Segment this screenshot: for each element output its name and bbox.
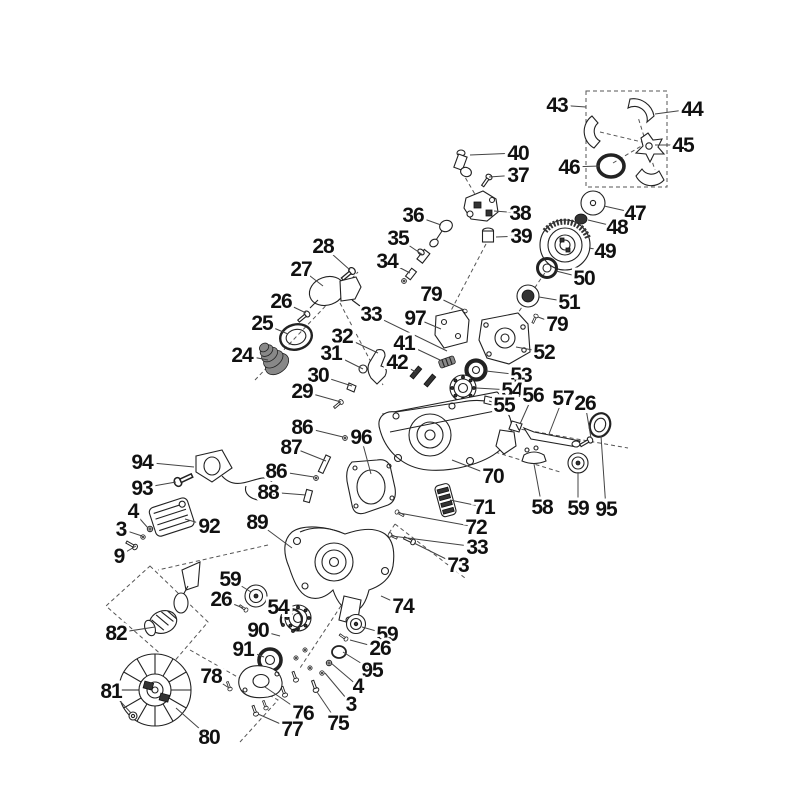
part-number-label: 96 xyxy=(350,426,372,449)
part-number-label: 81 xyxy=(100,680,123,703)
part-callout-26: 26 xyxy=(574,392,596,438)
part-number-label: 79 xyxy=(420,283,442,306)
leader-line xyxy=(392,536,477,547)
part-number-label: 35 xyxy=(387,227,410,250)
part-number-label: 31 xyxy=(320,342,343,365)
parts-diagram-page: 4344454640373638393534282726252447484950… xyxy=(0,0,800,800)
part-number-label: 51 xyxy=(558,291,581,314)
part-callout-44: 44 xyxy=(655,98,704,121)
part-number-label: 56 xyxy=(522,384,544,407)
part-callout-26: 26 xyxy=(350,637,391,660)
part-callout-86: 86 xyxy=(265,460,314,483)
part-number-label: 86 xyxy=(265,460,287,483)
part-number-label: 48 xyxy=(606,216,629,239)
part-number-label: 75 xyxy=(327,712,350,735)
part-number-label: 95 xyxy=(361,659,384,682)
part-number-label: 73 xyxy=(447,554,469,577)
part-number-label: 77 xyxy=(281,718,303,741)
part-number-label: 49 xyxy=(594,240,616,263)
part-number-label: 78 xyxy=(200,665,223,688)
part-number-label: 33 xyxy=(360,303,382,326)
part-number-label: 3 xyxy=(116,518,127,541)
part-number-label: 95 xyxy=(595,498,618,521)
part-number-label: 26 xyxy=(574,392,596,415)
part-number-label: 34 xyxy=(376,250,399,273)
part-callout-88: 88 xyxy=(257,481,306,504)
part-number-label: 37 xyxy=(507,164,529,187)
part-callout-50: 50 xyxy=(556,267,595,290)
exploded-parts-diagram: 4344454640373638393534282726252447484950… xyxy=(0,0,800,800)
part-callout-56: 56 xyxy=(520,384,544,424)
part-callout-78: 78 xyxy=(200,665,229,688)
part-number-label: 59 xyxy=(567,497,589,520)
part-number-label: 50 xyxy=(573,267,595,290)
part-number-label: 25 xyxy=(251,312,274,335)
part-callout-28: 28 xyxy=(312,235,350,270)
part-callout-46: 46 xyxy=(558,156,600,179)
part-callout-27: 27 xyxy=(290,258,323,286)
part-number-label: 80 xyxy=(198,726,220,749)
part-callout-37: 37 xyxy=(489,164,529,187)
part-number-label: 26 xyxy=(270,290,292,313)
part-callout-77: 77 xyxy=(258,714,303,741)
part-callout-95: 95 xyxy=(595,436,618,521)
part-callout-36: 36 xyxy=(402,204,441,227)
part-number-label: 4 xyxy=(128,500,140,523)
crankcase-side-plate xyxy=(479,313,530,364)
part-callout-51: 51 xyxy=(539,291,581,314)
part-number-label: 58 xyxy=(531,496,554,519)
part-callout-9: 9 xyxy=(114,545,136,568)
part-callout-40: 40 xyxy=(470,142,529,165)
part-number-label: 55 xyxy=(493,394,516,417)
part-number-label: 27 xyxy=(290,258,312,281)
part-callout-25: 25 xyxy=(251,312,288,335)
part-number-label: 24 xyxy=(231,344,254,367)
clutch-spring-ring xyxy=(598,155,624,177)
part-callout-38: 38 xyxy=(494,202,532,225)
part-number-label: 57 xyxy=(552,387,574,410)
part-callout-58: 58 xyxy=(531,464,554,519)
part-callout-79: 79 xyxy=(420,283,464,310)
part-number-label: 82 xyxy=(105,622,127,645)
oiler-worm-group xyxy=(143,562,200,637)
part-number-label: 45 xyxy=(672,134,695,157)
part-callout-26: 26 xyxy=(270,290,306,313)
part-callout-26: 26 xyxy=(210,588,243,611)
part-number-label: 29 xyxy=(291,380,313,403)
part-number-label: 87 xyxy=(280,436,302,459)
part-number-label: 89 xyxy=(246,511,268,534)
part-callout-87: 87 xyxy=(280,436,326,461)
part-callout-49: 49 xyxy=(589,240,616,263)
part-number-label: 54 xyxy=(267,596,290,619)
part-callout-59: 59 xyxy=(567,472,589,520)
part-callout-39: 39 xyxy=(496,225,532,248)
part-number-label: 38 xyxy=(509,202,532,225)
part-number-label: 26 xyxy=(369,637,391,660)
part-number-label: 36 xyxy=(402,204,424,227)
part-number-label: 79 xyxy=(546,313,568,336)
part-number-label: 9 xyxy=(114,545,125,568)
part-callout-94: 94 xyxy=(131,451,194,474)
flywheel-group xyxy=(119,654,191,726)
part-number-label: 39 xyxy=(510,225,532,248)
part-callout-43: 43 xyxy=(546,94,586,117)
part-callout-93: 93 xyxy=(131,477,176,500)
part-number-label: 91 xyxy=(232,638,255,661)
part-callout-48: 48 xyxy=(588,216,629,239)
part-number-label: 70 xyxy=(482,465,504,488)
part-callout-4: 4 xyxy=(128,500,148,528)
part-number-label: 97 xyxy=(404,307,426,330)
part-callout-74: 74 xyxy=(381,595,415,618)
part-number-label: 94 xyxy=(131,451,154,474)
part-number-label: 33 xyxy=(466,536,488,559)
baffle-group xyxy=(387,483,456,546)
part-callout-30: 30 xyxy=(307,364,352,387)
part-number-label: 42 xyxy=(386,351,408,374)
part-callout-79: 79 xyxy=(538,313,568,336)
part-number-label: 93 xyxy=(131,477,153,500)
part-number-label: 43 xyxy=(546,94,568,117)
part-number-label: 88 xyxy=(257,481,280,504)
part-callout-89: 89 xyxy=(246,511,292,548)
part-number-label: 26 xyxy=(210,588,232,611)
part-number-label: 52 xyxy=(533,341,555,364)
part-number-label: 46 xyxy=(558,156,580,179)
part-callout-80: 80 xyxy=(176,708,220,749)
pump-cover-group xyxy=(225,666,282,717)
clutch-group-box xyxy=(586,91,667,187)
part-number-label: 74 xyxy=(392,595,415,618)
clutch-assembly xyxy=(584,99,664,186)
part-number-label: 44 xyxy=(681,98,704,121)
part-callout-34: 34 xyxy=(376,250,410,273)
part-number-label: 28 xyxy=(312,235,335,258)
part-callout-55: 55 xyxy=(489,394,516,417)
part-number-label: 92 xyxy=(198,515,220,538)
part-callout-57: 57 xyxy=(549,387,574,434)
part-number-label: 40 xyxy=(507,142,529,165)
